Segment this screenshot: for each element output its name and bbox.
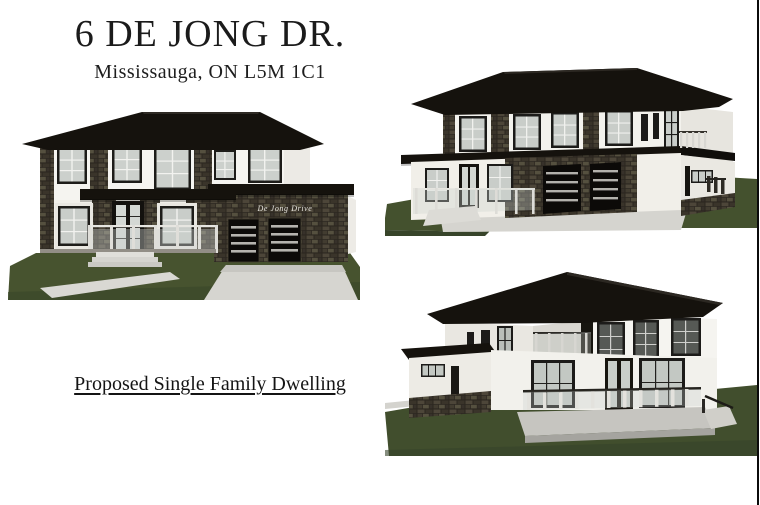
front-elevation-rendering: De Jong Drive [2,100,380,300]
garage-door-left [228,219,259,262]
yard-fence [706,176,726,194]
garage-door-right [268,218,301,262]
presentation-page: 6 DE JONG DR. Mississauga, ON L5M 1C1 Pr… [0,0,760,505]
garage-address-script: De Jong Drive [257,204,313,213]
main-roof [411,68,733,115]
garage-door-right [590,162,621,211]
porch-roof [80,189,236,200]
proposal-caption: Proposed Single Family Dwelling [0,373,420,396]
garage-door-left [543,164,581,214]
page-subtitle: Mississauga, ON L5M 1C1 [0,61,420,84]
front-steps [88,252,162,267]
deck-railing [523,387,701,410]
page-title: 6 DE JONG DR. [0,14,420,56]
front-corner-perspective-rendering [385,58,757,238]
side-garage-wing [401,343,497,418]
front-driveway [204,265,358,300]
front-elevation-drawing: De Jong Drive [2,100,380,300]
main-roof [22,112,324,150]
rear-corner-perspective-drawing [385,256,757,458]
page-header: 6 DE JONG DR. Mississauga, ON L5M 1C1 [0,14,420,84]
front-corner-perspective-drawing [385,58,757,238]
rear-corner-perspective-rendering [385,256,757,458]
page-edge-line [757,0,759,505]
porch-railing [88,225,218,253]
main-roof [427,272,723,324]
